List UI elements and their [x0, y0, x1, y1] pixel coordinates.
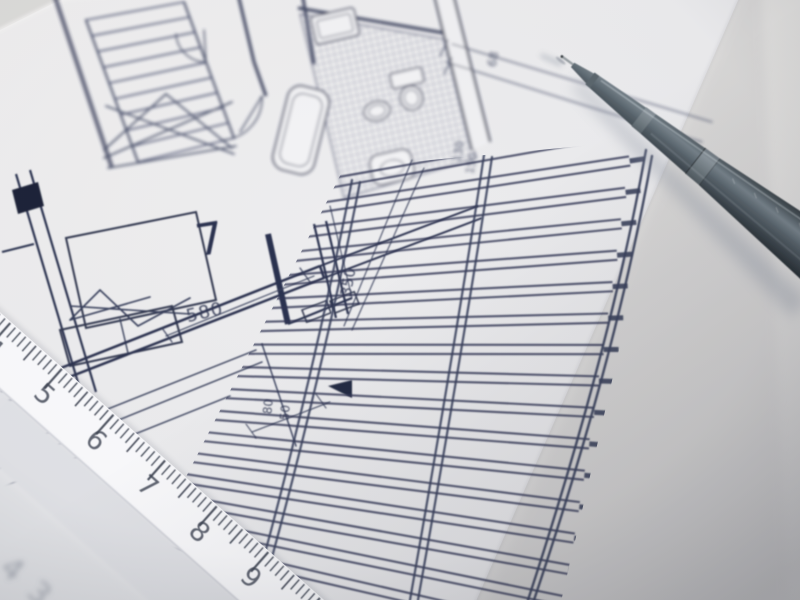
scene-canvas: 68 130 150 580 7 350 80 50 — [0, 0, 800, 600]
corner-shadow — [0, 0, 800, 600]
photo-scene: 68 130 150 580 7 350 80 50 — [0, 0, 800, 600]
